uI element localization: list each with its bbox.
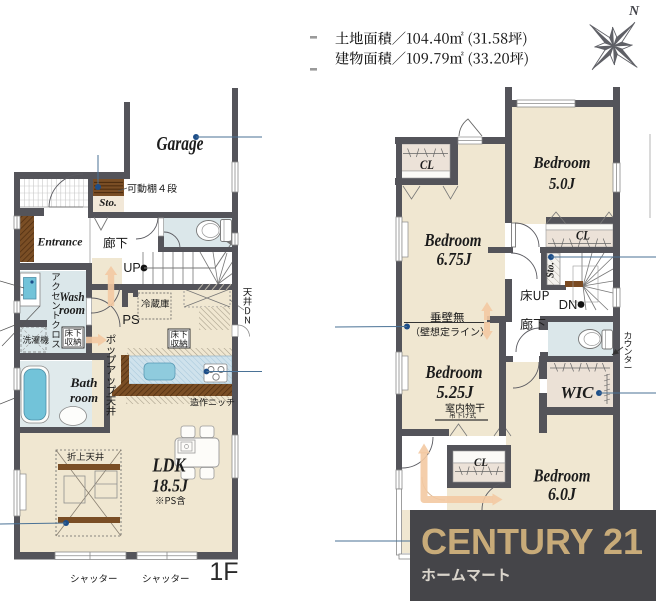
svg-text:CENTURY 21: CENTURY 21 — [421, 521, 643, 562]
svg-text:5.25J: 5.25J — [437, 382, 475, 402]
svg-text:Sto.: Sto. — [546, 262, 557, 278]
svg-text:N: N — [628, 4, 640, 19]
svg-text:WIC: WIC — [560, 383, 594, 402]
svg-text:6.0J: 6.0J — [548, 484, 577, 504]
svg-text:5.0J: 5.0J — [549, 174, 575, 193]
svg-text:Bath: Bath — [69, 376, 97, 390]
svg-text:Bedroom: Bedroom — [533, 466, 591, 486]
svg-text:DN: DN — [559, 297, 578, 312]
svg-text:Bedroom: Bedroom — [425, 362, 483, 382]
svg-text:18.5J: 18.5J — [152, 476, 189, 496]
svg-text:CL: CL — [576, 228, 590, 243]
svg-text:UP: UP — [123, 261, 140, 275]
svg-text:CL: CL — [420, 157, 434, 172]
svg-text:1F: 1F — [209, 558, 238, 586]
svg-text:Entrance: Entrance — [36, 237, 82, 249]
svg-text:room: room — [70, 391, 98, 405]
svg-text:Sto.: Sto. — [99, 197, 116, 209]
svg-text:CL: CL — [474, 455, 488, 469]
svg-text:Wash: Wash — [60, 290, 85, 304]
svg-text:Bedroom: Bedroom — [424, 230, 482, 250]
svg-text:6.75J: 6.75J — [437, 249, 473, 269]
svg-text:PS: PS — [122, 312, 140, 327]
svg-text:LDK: LDK — [152, 455, 187, 477]
svg-text:Bedroom: Bedroom — [533, 153, 591, 172]
svg-text:room: room — [59, 303, 85, 317]
